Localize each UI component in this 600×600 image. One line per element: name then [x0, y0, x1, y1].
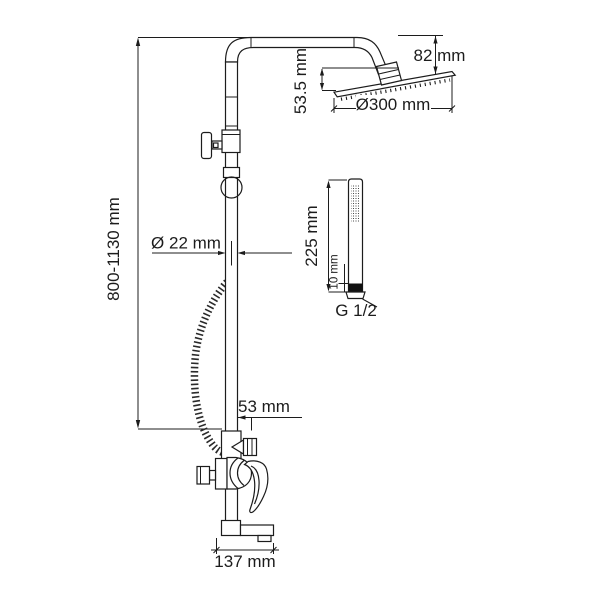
arrow-up-icon: [136, 38, 140, 47]
dimension-head-arm-height: 82 mm: [398, 36, 465, 75]
dimension-column-diameter: Ø 22 mm: [151, 234, 292, 266]
diverter-handle: [202, 133, 212, 159]
head-diameter-label: Ø300 mm: [356, 95, 431, 114]
head-drop-label: 53.5 mm: [291, 48, 310, 114]
hand-shower-grip-band: [349, 284, 363, 293]
hand-shower-detail: 225 mm 10 mm G 1/2: [302, 179, 377, 320]
dimension-outlet-offset: 53 mm: [238, 397, 302, 431]
tub-spout: [222, 521, 274, 542]
side-knob: [197, 467, 210, 485]
column-diameter-label: Ø 22 mm: [151, 234, 221, 253]
shower-arm: [226, 38, 402, 86]
shower-system-diagram: 800-1130 mm Ø 22 mm: [0, 0, 600, 600]
joint-collar: [224, 168, 240, 178]
overall-height-label: 800-1130 mm: [104, 197, 123, 301]
mixer-escutcheon: [216, 459, 228, 490]
connection-thread-label: G 1/2: [335, 301, 377, 320]
hose-nut: [244, 439, 257, 456]
hand-shower-inlet-base: [346, 292, 365, 299]
hand-shower-length-label: 225 mm: [302, 205, 321, 266]
technical-drawing-page: 800-1130 mm Ø 22 mm: [0, 0, 600, 600]
spout-arm: [241, 525, 274, 536]
diverter-body: [222, 130, 240, 153]
head-arm-height-label: 82 mm: [414, 46, 466, 65]
spout-aerator: [258, 536, 271, 542]
side-knob-stem: [210, 471, 216, 481]
hand-shower-spray-face: [351, 184, 360, 223]
dimension-spout-reach: 137 mm: [211, 538, 279, 571]
arrow-down-icon: [136, 420, 140, 429]
spout-foot: [222, 521, 241, 536]
spout-reach-label: 137 mm: [214, 552, 275, 571]
outlet-offset-label: 53 mm: [238, 397, 290, 416]
hand-shower-inlet-label: 10 mm: [329, 254, 341, 289]
